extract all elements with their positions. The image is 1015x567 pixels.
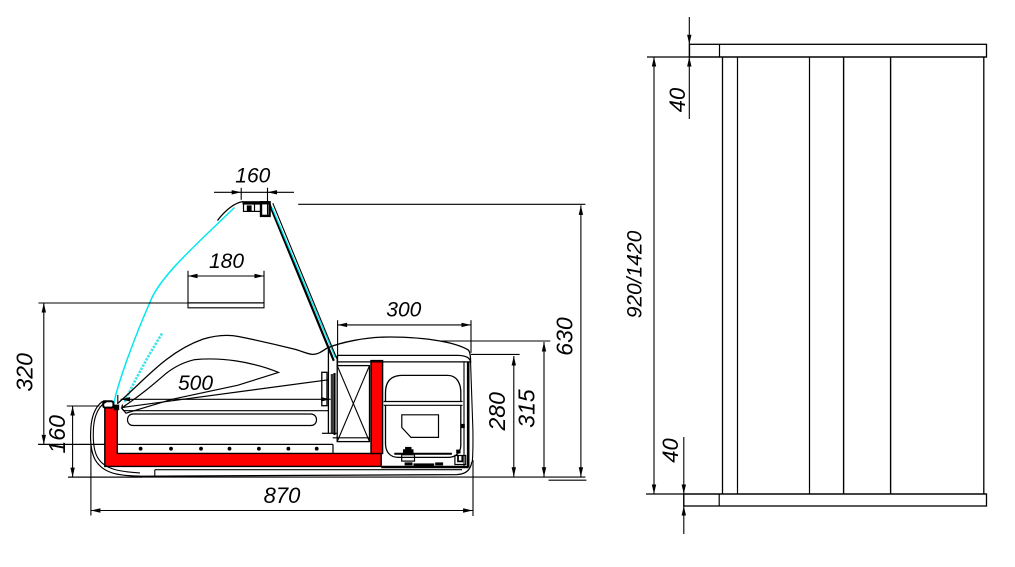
svg-text:870: 870 [264,483,301,508]
svg-text:40: 40 [665,87,690,112]
svg-text:40: 40 [658,438,683,463]
svg-text:320: 320 [12,353,38,392]
svg-text:630: 630 [551,317,577,356]
svg-text:500: 500 [178,372,213,395]
svg-text:300: 300 [386,299,421,322]
svg-text:315: 315 [514,389,540,428]
svg-text:280: 280 [484,392,510,432]
svg-text:160: 160 [44,415,70,454]
svg-text:180: 180 [209,250,244,273]
svg-text:160: 160 [235,164,270,187]
svg-text:920/1420: 920/1420 [624,230,647,318]
